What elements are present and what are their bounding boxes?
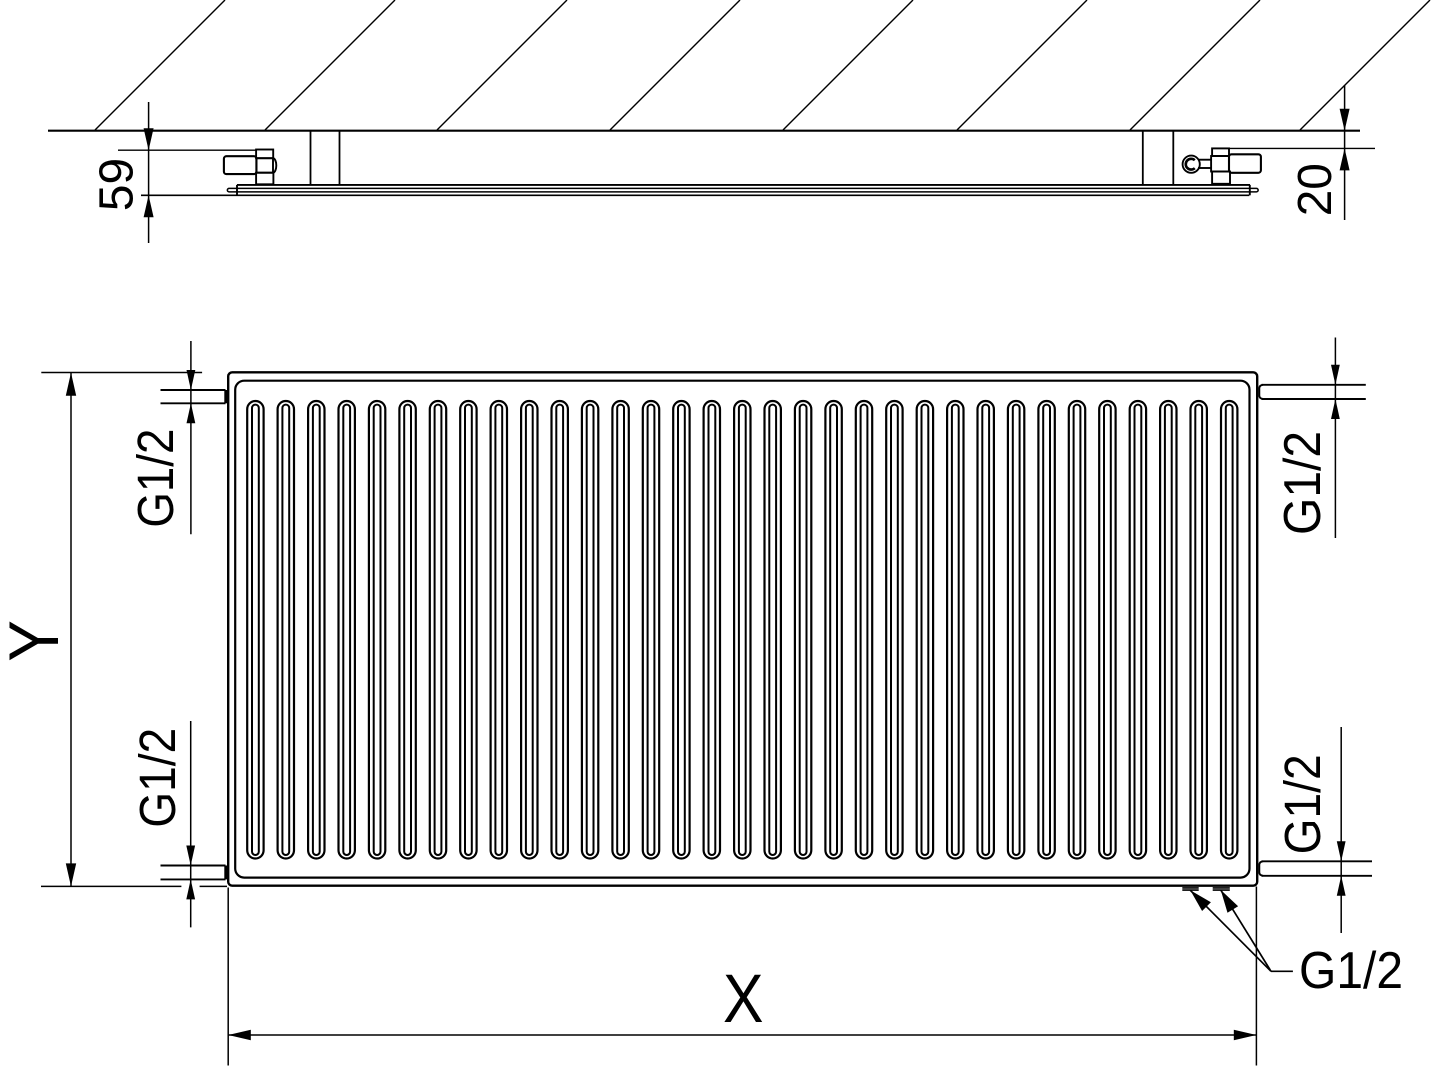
svg-text:20: 20 <box>1288 163 1342 216</box>
svg-text:Y: Y <box>0 620 73 662</box>
svg-text:G1/2: G1/2 <box>1299 942 1403 1000</box>
svg-text:G1/2: G1/2 <box>129 728 186 828</box>
svg-text:59: 59 <box>89 158 143 211</box>
svg-text:G1/2: G1/2 <box>1274 754 1331 854</box>
svg-text:X: X <box>723 960 764 1037</box>
svg-text:G1/2: G1/2 <box>1274 431 1332 535</box>
svg-text:G1/2: G1/2 <box>127 429 184 528</box>
